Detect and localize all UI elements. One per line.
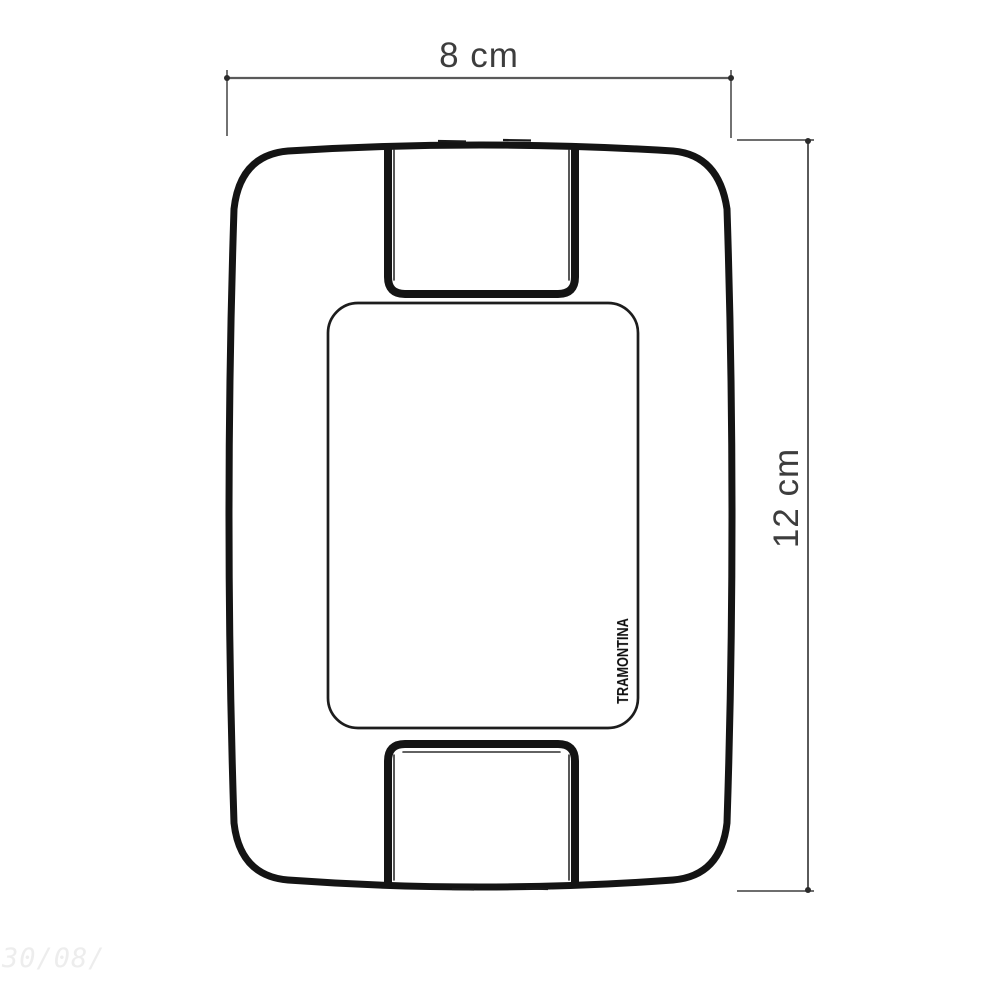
bottom-mounting-tab (388, 744, 575, 884)
plate-outer-edge (229, 145, 732, 887)
timestamp-watermark: 30/08/ 2021 / 08:36: 53 (2, 884, 106, 1000)
edge-notch-marks (438, 140, 548, 890)
top-edge-notch (503, 140, 531, 141)
dimension-end-dot (805, 138, 811, 144)
drawing-canvas: 8 cm 12 cm TRAMONTINA 30/08/ 2021 / 08:3… (0, 0, 1000, 1000)
top-edge-notch (438, 141, 466, 142)
plate-outline (229, 145, 732, 887)
plate-line-art (0, 0, 1000, 1000)
top-tab-outline (388, 147, 575, 294)
width-dimension (224, 70, 734, 138)
watermark-line: 30/08/ (2, 944, 106, 974)
width-dimension-label: 8 cm (379, 36, 579, 76)
bottom-edge-notch (526, 889, 548, 890)
top-mounting-tab (388, 147, 575, 294)
center-module-opening (328, 303, 638, 728)
bottom-edge-notch (452, 889, 474, 890)
height-dimension-label: 12 cm (767, 398, 807, 598)
brand-label: TRAMONTINA (616, 599, 635, 722)
dimension-end-dot (224, 75, 230, 81)
dimension-end-dot (728, 75, 734, 81)
bottom-tab-outline (388, 744, 575, 884)
dimension-end-dot (805, 887, 811, 893)
